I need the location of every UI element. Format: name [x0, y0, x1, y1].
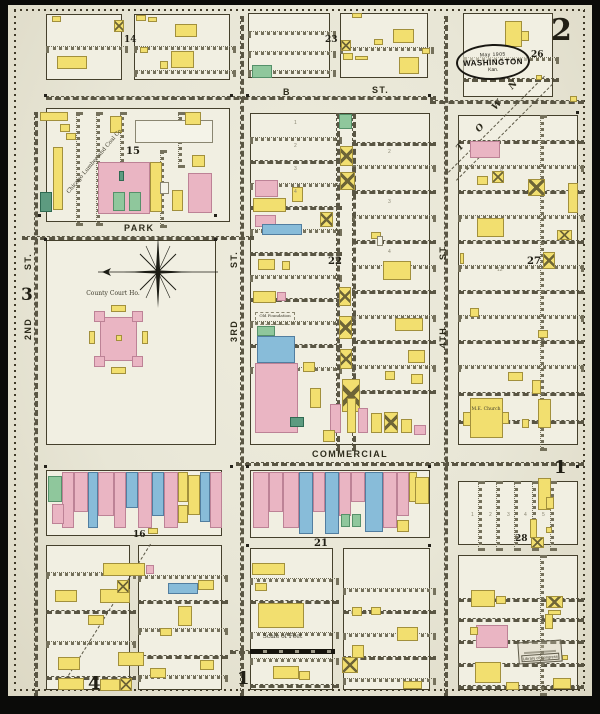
map-label: Scale of Feet — [255, 634, 310, 641]
building — [339, 287, 351, 306]
building — [385, 371, 395, 380]
building — [531, 537, 544, 548]
street-label: ST. — [372, 86, 389, 96]
building — [192, 155, 205, 167]
building — [66, 133, 76, 140]
lot-number: 4 — [524, 513, 527, 519]
building — [135, 120, 213, 143]
street-label: 2ND — [24, 318, 34, 340]
block-number: 2 — [551, 14, 572, 47]
building — [255, 583, 267, 591]
building — [198, 580, 214, 590]
title-state: Kan. — [488, 66, 499, 72]
corner-dot — [44, 94, 47, 97]
building — [188, 475, 200, 515]
building — [283, 472, 299, 528]
building — [506, 682, 519, 690]
building — [320, 212, 333, 227]
building — [146, 565, 154, 574]
street-label: B — [283, 88, 291, 98]
building — [55, 590, 77, 602]
building — [476, 625, 508, 648]
building — [114, 20, 124, 32]
block-number: 27 — [527, 256, 541, 267]
corner-dot — [246, 465, 249, 468]
building — [175, 24, 197, 37]
building — [371, 413, 382, 433]
corner-dot — [576, 111, 579, 114]
building — [570, 96, 577, 102]
building — [470, 308, 479, 317]
building — [347, 398, 356, 433]
building — [200, 472, 210, 522]
building — [323, 430, 335, 442]
building — [553, 678, 571, 689]
building — [148, 528, 158, 534]
corner-dot — [428, 94, 431, 97]
lot-line-v — [540, 555, 544, 696]
building — [188, 173, 212, 213]
building — [562, 655, 568, 660]
building — [383, 472, 397, 528]
building — [290, 417, 304, 427]
building — [118, 652, 144, 666]
lot-line-h — [138, 600, 228, 604]
lot-line-h — [46, 610, 136, 614]
corner-dot — [246, 544, 249, 547]
block-number: 23 — [325, 36, 338, 46]
block-number: 15 — [126, 146, 140, 157]
building — [119, 171, 124, 181]
lot-line-h — [352, 190, 436, 194]
lot-line-h — [343, 588, 436, 592]
lot-line-h — [46, 641, 136, 645]
stamp-text: Library of Congress — [521, 653, 560, 663]
building — [299, 671, 310, 680]
lot-line-h — [134, 70, 236, 74]
corner-dot — [44, 238, 47, 241]
map-label: M.E. Church — [464, 408, 508, 413]
building — [299, 472, 313, 534]
lot-number: 2 — [489, 513, 492, 519]
lot-line-h — [236, 462, 584, 466]
building — [477, 176, 488, 185]
lot-line-h — [250, 160, 342, 164]
scale-ruler — [250, 649, 335, 654]
building — [132, 356, 143, 367]
lot-line-h — [138, 628, 228, 632]
building — [384, 412, 398, 433]
building — [530, 519, 537, 538]
corner-dot — [214, 214, 217, 217]
building — [172, 190, 183, 211]
street-label: PARK — [124, 224, 154, 234]
building — [257, 336, 295, 363]
building — [358, 408, 368, 433]
building — [52, 16, 61, 22]
building — [269, 472, 283, 512]
lot-line-v — [76, 112, 80, 226]
building — [397, 520, 409, 532]
building — [273, 666, 299, 679]
building — [393, 29, 414, 43]
building — [470, 141, 500, 158]
building — [282, 261, 290, 270]
building — [89, 331, 95, 344]
building — [253, 291, 276, 303]
building — [257, 326, 275, 336]
building — [401, 419, 412, 433]
building — [340, 172, 355, 190]
lot-number: 4 — [294, 190, 297, 196]
building — [460, 253, 464, 264]
border-ticks-left — [14, 10, 16, 686]
building — [496, 596, 506, 604]
corner-dot — [230, 94, 233, 97]
building — [471, 590, 495, 607]
street-label: ST. — [439, 243, 449, 260]
corner-dot — [38, 214, 41, 217]
lot-line-v — [240, 16, 244, 696]
building — [40, 112, 68, 121]
street-label: 4TH — [439, 327, 449, 348]
building — [94, 311, 105, 322]
lot-line-h — [46, 46, 128, 50]
building — [470, 398, 503, 438]
corner-dot — [230, 465, 233, 468]
building — [339, 114, 352, 129]
building — [422, 48, 430, 54]
building — [160, 182, 169, 194]
lot-line-h — [250, 578, 339, 582]
building — [463, 412, 471, 426]
building — [303, 362, 315, 372]
lot-line-h — [250, 137, 342, 141]
lot-line-h — [250, 275, 342, 279]
building — [408, 350, 425, 363]
lot-number: 1 — [471, 513, 474, 519]
corner-dot — [576, 465, 579, 468]
building — [399, 57, 419, 74]
lot-line-h — [352, 390, 436, 394]
block-number: 3 — [21, 286, 33, 305]
sanborn-map-sheet: BST.PARKCOMMERCIALST.2NDST.3RDST.4TH1423… — [0, 0, 600, 714]
building — [100, 679, 120, 691]
street-label: COMMERCIAL — [312, 450, 388, 460]
lot-line-h — [352, 240, 436, 244]
street-label: 3RD — [230, 320, 240, 342]
building — [352, 13, 362, 18]
building — [142, 331, 148, 344]
lot-line-h — [352, 340, 436, 344]
building — [152, 472, 164, 516]
lot-line-h — [250, 684, 339, 688]
building — [342, 657, 358, 673]
building — [325, 472, 339, 534]
building — [58, 678, 84, 690]
lot-line-h — [458, 618, 584, 622]
lot-line-h — [352, 215, 436, 219]
building — [557, 230, 572, 240]
compass-rose — [96, 234, 220, 312]
building — [94, 356, 105, 367]
building — [258, 603, 304, 628]
lot-line-h — [458, 290, 584, 294]
building — [352, 514, 361, 527]
building — [88, 615, 104, 625]
building — [57, 56, 87, 69]
building — [341, 514, 350, 527]
block-number: 28 — [515, 535, 528, 545]
building — [411, 374, 423, 384]
building — [546, 497, 554, 509]
building — [414, 425, 426, 435]
map-label: Old Foundation — [254, 314, 296, 318]
building — [508, 372, 523, 381]
lot-line-v — [444, 16, 448, 696]
street-label: ST. — [230, 251, 240, 268]
corner-dot — [428, 544, 431, 547]
building — [528, 179, 545, 196]
building — [116, 335, 122, 341]
block-number: 4 — [88, 674, 101, 694]
building — [74, 472, 88, 512]
building — [178, 606, 192, 626]
lot-line-v — [478, 481, 482, 551]
block-number: 16 — [133, 531, 146, 541]
lot-number: 5 — [542, 513, 545, 519]
lot-line-h — [248, 31, 336, 35]
building — [140, 47, 148, 53]
lot-line-h — [343, 633, 436, 637]
building — [313, 472, 325, 512]
block-number: 22 — [328, 256, 342, 267]
lot-line-h — [458, 265, 584, 269]
building — [395, 318, 423, 331]
building — [113, 192, 125, 211]
building — [178, 505, 188, 523]
building — [258, 259, 275, 270]
building — [475, 662, 501, 683]
building — [343, 53, 353, 60]
building — [200, 660, 214, 670]
border-ticks-right — [583, 10, 585, 686]
building — [403, 681, 422, 689]
building — [160, 61, 168, 69]
building — [546, 596, 563, 608]
building — [117, 580, 129, 593]
building — [538, 399, 551, 428]
building — [120, 678, 132, 691]
building — [129, 192, 141, 211]
lot-line-h — [134, 46, 236, 50]
building — [340, 349, 352, 369]
building — [341, 40, 351, 51]
lot-line-h — [343, 678, 436, 682]
building — [98, 472, 114, 516]
lot-number: 4 — [388, 250, 391, 256]
corner-dot — [246, 94, 249, 97]
building — [210, 472, 222, 528]
block-number: 26 — [531, 51, 544, 61]
building — [365, 472, 383, 532]
building — [114, 472, 126, 528]
lot-line-h — [352, 165, 436, 169]
building — [521, 31, 529, 41]
block-number: 1 — [554, 458, 567, 478]
building — [470, 627, 478, 635]
building — [277, 292, 286, 301]
building — [397, 627, 418, 641]
building — [568, 183, 578, 213]
building — [377, 236, 383, 246]
lot-number: 1 — [294, 121, 297, 127]
lot-number: 8 — [500, 168, 503, 174]
building — [415, 477, 429, 504]
lot-line-h — [340, 47, 434, 51]
building — [545, 614, 553, 629]
lot-line-h — [458, 365, 584, 369]
block-number: 21 — [314, 538, 328, 549]
lot-line-h — [430, 100, 584, 104]
building — [178, 472, 188, 502]
building — [546, 527, 552, 533]
lot-line-h — [458, 165, 584, 169]
lot-number: 2 — [388, 150, 391, 156]
building — [48, 476, 62, 502]
building — [310, 388, 321, 408]
block-number: 1 — [237, 669, 250, 689]
lot-line-h — [352, 142, 436, 146]
lot-line-h — [458, 392, 584, 396]
lot-line-h — [352, 365, 436, 369]
lot-line-h — [458, 340, 584, 344]
building — [255, 180, 278, 197]
building — [103, 563, 145, 576]
building — [252, 563, 285, 575]
building — [502, 412, 509, 424]
lot-line-h — [250, 658, 339, 662]
lot-line-v — [496, 481, 500, 551]
building — [160, 628, 172, 636]
building — [371, 607, 381, 615]
building — [132, 311, 143, 322]
building — [185, 112, 201, 125]
building — [355, 56, 368, 60]
block-number: 14 — [124, 36, 137, 46]
building — [253, 472, 269, 528]
lot-number: 3 — [388, 200, 391, 206]
building — [252, 65, 272, 78]
building — [148, 17, 157, 22]
building — [150, 668, 166, 678]
building — [352, 607, 362, 616]
building — [374, 39, 383, 45]
building — [168, 583, 198, 594]
building — [58, 657, 80, 670]
building — [340, 146, 353, 166]
building — [88, 472, 98, 528]
building — [164, 472, 178, 528]
lot-line-v — [34, 112, 38, 696]
building — [538, 330, 548, 338]
building — [383, 261, 411, 280]
building — [339, 472, 351, 516]
building — [126, 472, 138, 508]
library-stamp: Library of Congress — [517, 639, 562, 664]
building — [397, 472, 409, 516]
lot-line-h — [458, 190, 584, 194]
building — [40, 192, 52, 212]
border-ticks-top — [14, 9, 585, 11]
building — [253, 198, 286, 212]
lot-line-h — [352, 290, 436, 294]
lot-number: 2 — [294, 144, 297, 150]
building — [171, 51, 194, 68]
building — [351, 472, 365, 502]
lot-number: 3 — [294, 167, 297, 173]
building — [536, 75, 542, 80]
lot-line-h — [138, 655, 228, 659]
lot-line-h — [138, 575, 228, 579]
building — [532, 380, 541, 394]
building — [52, 504, 64, 524]
building — [60, 124, 70, 132]
building — [543, 252, 555, 269]
building — [111, 367, 126, 374]
building — [262, 224, 302, 235]
building — [522, 419, 529, 428]
lot-number: 3 — [507, 513, 510, 519]
lot-line-h — [458, 240, 584, 244]
building — [477, 218, 504, 237]
lot-line-h — [352, 315, 436, 319]
building — [138, 472, 152, 528]
building — [330, 404, 341, 433]
building — [339, 316, 352, 339]
lot-line-h — [248, 51, 336, 55]
lot-number: 12 — [497, 268, 503, 274]
corner-dot — [428, 465, 431, 468]
street-label: ST. — [24, 253, 34, 270]
building — [505, 21, 522, 47]
building — [136, 15, 146, 21]
corner-dot — [44, 465, 47, 468]
